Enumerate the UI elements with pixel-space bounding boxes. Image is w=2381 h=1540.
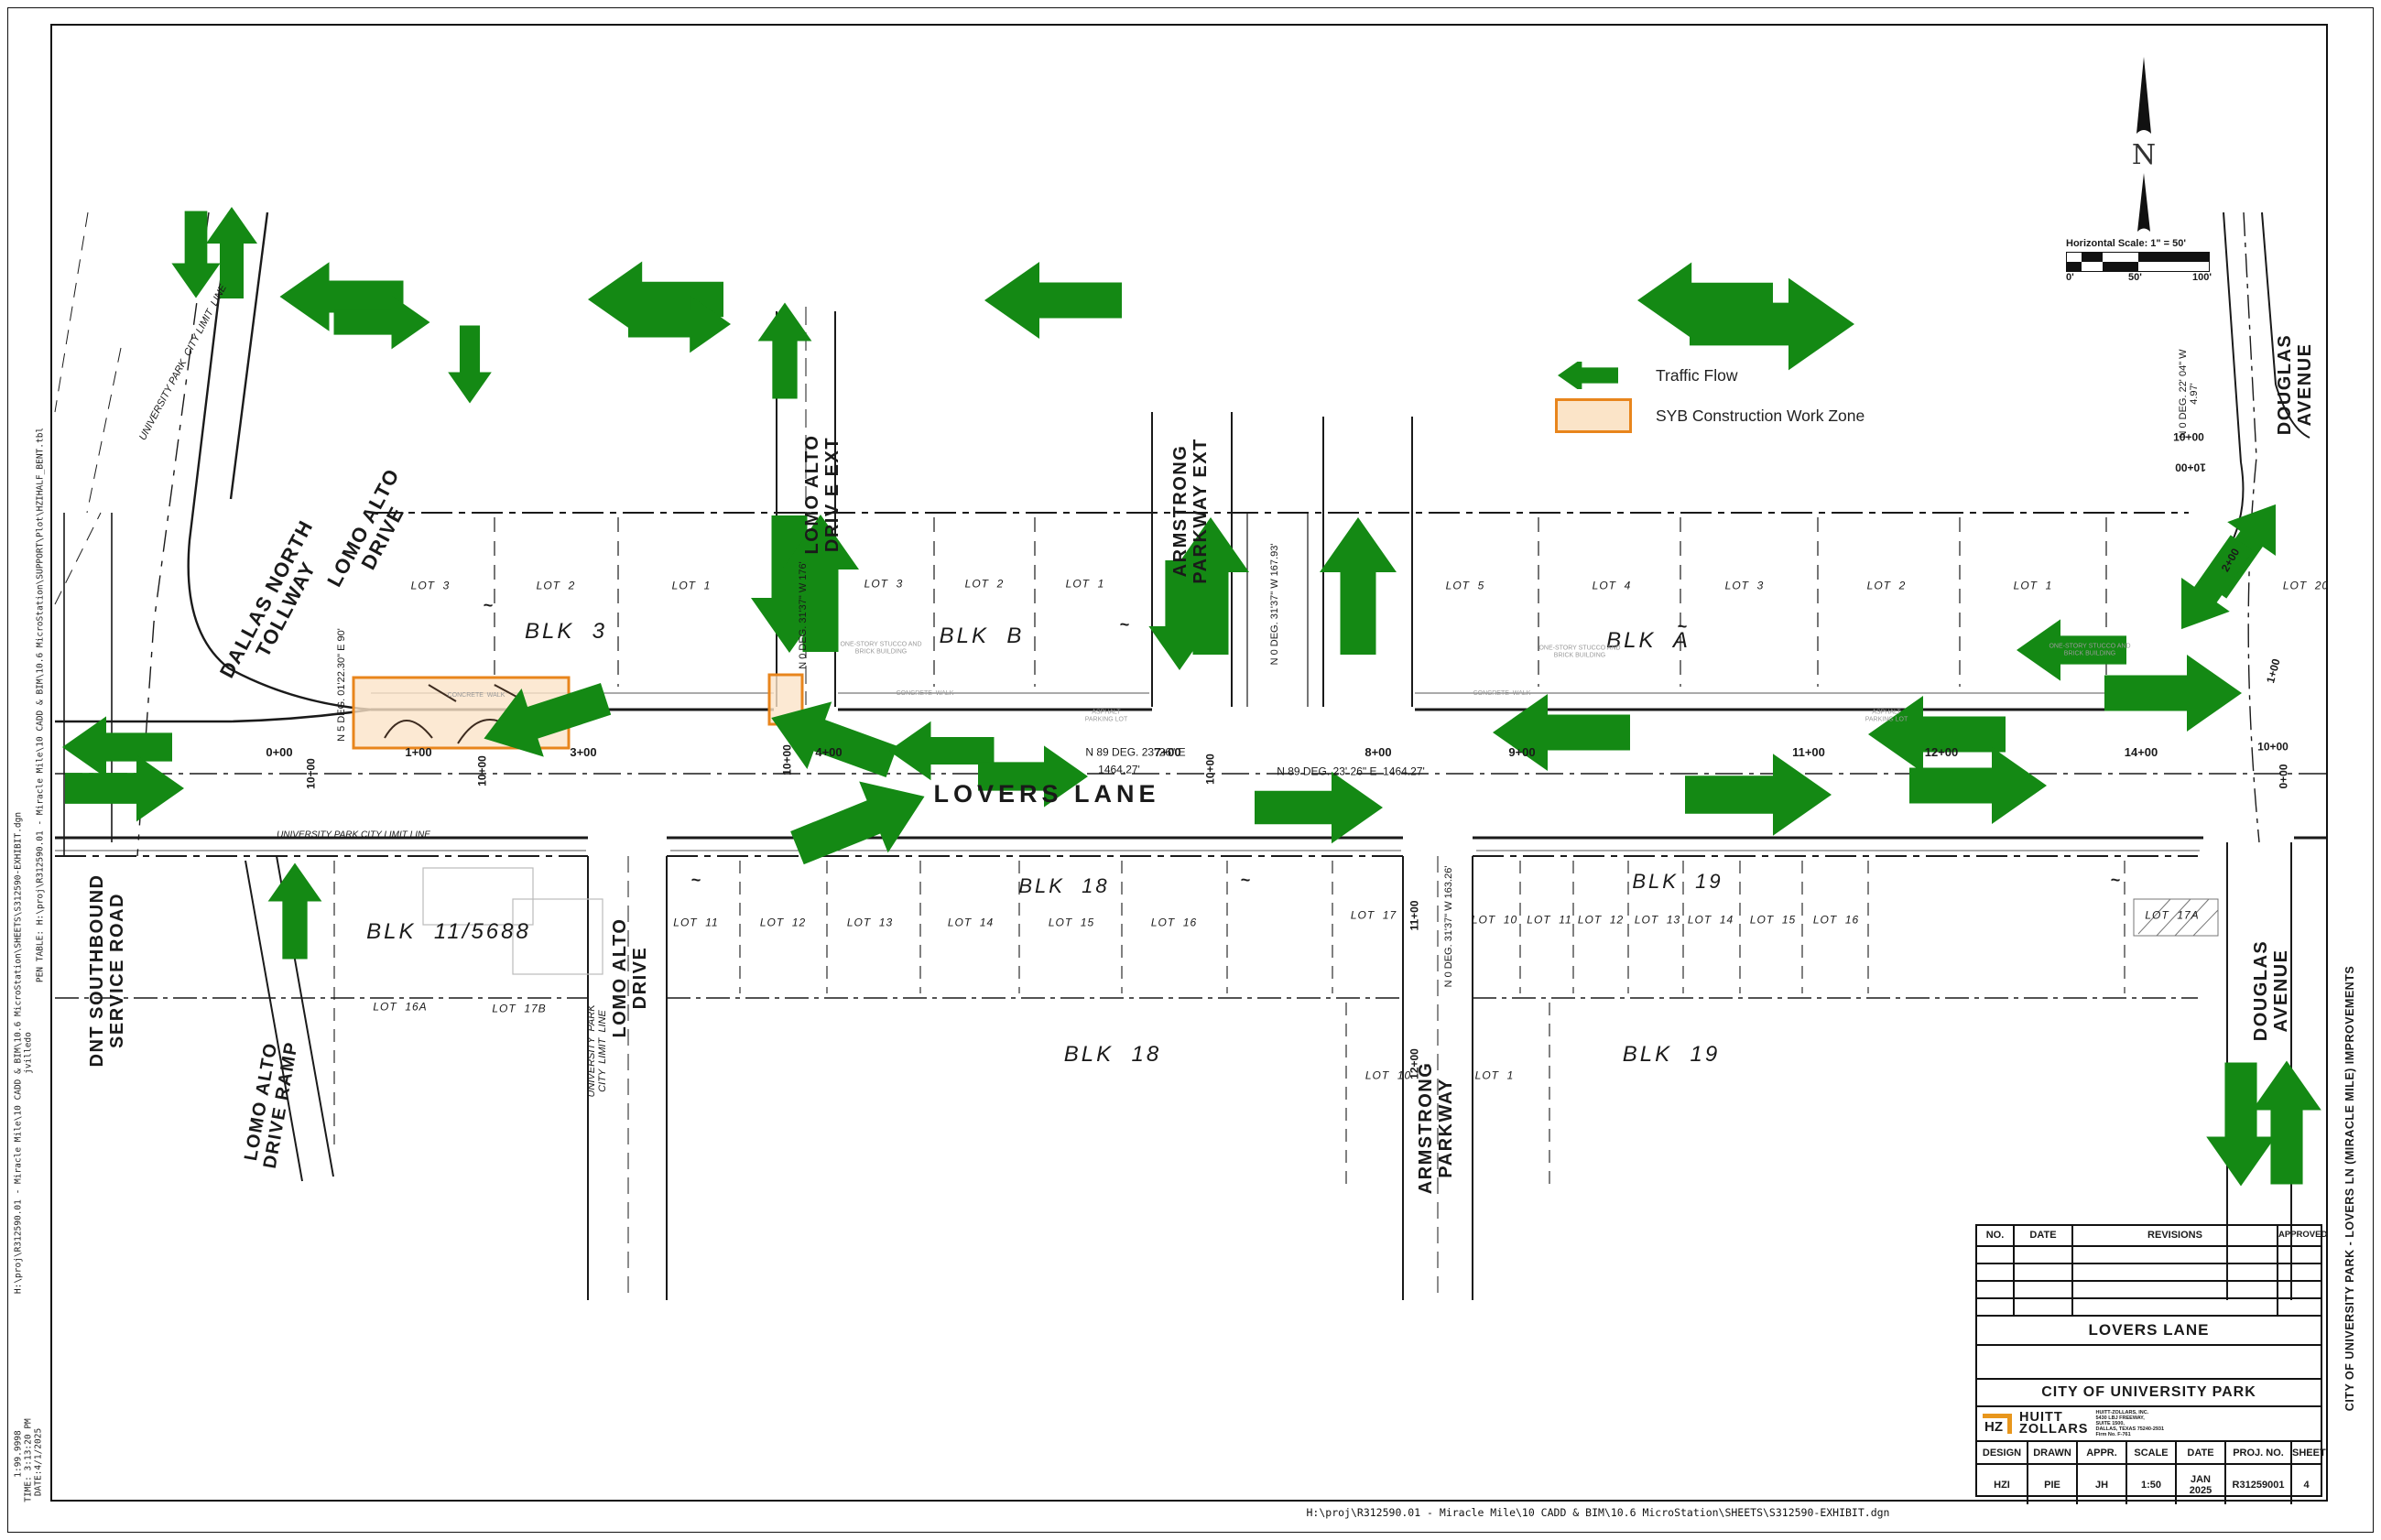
north-arrow-upper-spike [2121,55,2167,136]
lot-label: LOT 17B [492,1003,546,1014]
lot-label: LOT 16 [1813,914,1859,926]
lot-label: LOT 16 [1151,916,1197,928]
station-label: 10+00 [476,755,488,786]
right-margin-title: CITY OF UNIVERSITY PARK - LOVERS LN (MIR… [2343,966,2356,1411]
lot-label: LOT 2 [537,580,576,591]
north-arrow-lower-spike [2121,171,2167,233]
break-symbol: ~ [1241,872,1251,890]
revision-empty-cell [1977,1299,2015,1315]
revision-empty-cell [2073,1282,2278,1297]
title-block-value-design: HZI [1977,1465,2028,1504]
street-lovers-lane: LOVERS LANE [933,781,1159,808]
annotation-label: ONE-STORY STUCCO AND BRICK BUILDING [2049,643,2130,656]
revision-empty-cell [2015,1264,2073,1280]
title-block-column-values: HZIPIEJH1:50JAN 2025R312590014 [1977,1465,2321,1504]
station-label: 4+00 [815,746,842,759]
break-symbol: ~ [484,597,494,615]
lot-label: LOT 3 [1725,580,1765,591]
revision-empty-cell [2278,1282,2321,1297]
title-block-spacer [1977,1346,2321,1380]
title-block-header-drawn: DRAWN [2028,1442,2078,1463]
lot-label: LOT 17 [1351,909,1397,921]
block-blk-19-upper: BLK 19 [1632,871,1723,893]
horizontal-scale-bar: Horizontal Scale: 1" = 50' 0' 50' 100' [2066,238,2212,285]
station-label: 14+00 [2125,746,2158,759]
street-dnt-southbound-service-road: DNT SOUTHBOUND SERVICE ROAD [87,874,127,1068]
revision-empty-row [1977,1247,2321,1264]
block-blk-19-lower: BLK 19 [1623,1043,1720,1067]
lot-label: LOT 4 [1593,580,1632,591]
revision-empty-cell [2073,1247,2278,1263]
lot-label: LOT 14 [1688,914,1734,926]
scale-tick-50: 50' [2128,272,2142,283]
revision-empty-row [1977,1299,2321,1317]
street-armstrong-parkway-ext: ARMSTRONG PARKWAY EXT [1170,438,1211,584]
revision-empty-cell [2278,1264,2321,1280]
station-label: 1+00 [405,746,431,759]
lot-label: LOT 1 [2014,580,2053,591]
bearing-label: N 0 DEG. 31'37" W 176' [798,561,809,669]
annotation-label: CONCRETE WALK [1473,690,1531,698]
title-block-header-appr-: APPR. [2078,1442,2127,1463]
block-blk-11-5688: BLK 11/5688 [366,920,531,944]
north-arrow: N [2121,55,2167,238]
revisions-col-revisions: REVISIONS [2073,1226,2278,1245]
legend-traffic-flow-label: Traffic Flow [1656,366,1737,385]
revision-empty-row [1977,1264,2321,1282]
title-block-header-proj-no-: PROJ. NO. [2226,1442,2292,1463]
title-block-column-headers: DESIGNDRAWNAPPR.SCALEDATEPROJ. NO.SHEET [1977,1442,2321,1465]
station-label: 1+00 [2265,657,2283,685]
lot-label: LOT 2 [1867,580,1907,591]
scale-tick-0: 0' [2066,272,2074,283]
lot-label: LOT 14 [948,916,994,928]
legend-workzone-label: SYB Construction Work Zone [1656,407,1865,426]
client-title: CITY OF UNIVERSITY PARK [1977,1380,2321,1407]
scale-title: Horizontal Scale: 1" = 50' [2066,238,2212,249]
title-block-value-drawn: PIE [2028,1465,2078,1504]
north-letter: N [2121,140,2167,171]
scale-tick-100: 100' [2192,272,2212,283]
scale-bar-graphic [2066,252,2210,272]
revisions-empty-rows [1977,1247,2321,1317]
lot-label: LOT 1 [672,580,712,591]
lot-label: LOT 15 [1049,916,1094,928]
annotation-label: ASPHALT PARKING LOT [1865,709,1908,722]
city-limit-label: UNIVERSITY PARK CITY LIMIT LINE [277,830,430,840]
station-label: 10+00 [305,758,317,789]
lot-label: LOT 11 [1527,914,1571,926]
city-limit-label: UNIVERSITY PARK CITY LIMIT LINE [586,1004,608,1097]
left-margin-text: H:\proj\R312590.01 - Miracle Mile\10 CAD… [14,812,24,1294]
lot-label: LOT 12 [760,916,806,928]
revisions-col-date: DATE [2015,1226,2073,1245]
title-block-value-appr-: JH [2078,1465,2127,1504]
station-label: 3+00 [570,746,596,759]
left-margin-text: 1:99.9998 [14,1430,24,1477]
street-lomo-alto-drive-s: LOMO ALTO DRIVE [610,918,650,1038]
workzone-swatch-icon [1555,398,1632,433]
revision-empty-cell [2015,1282,2073,1297]
project-title: LOVERS LANE [1977,1317,2321,1346]
street-armstrong-parkway-s: ARMSTRONG PARKWAY [1416,1062,1456,1195]
lot-label: LOT 15 [1750,914,1796,926]
scale-tick-labels: 0' 50' 100' [2066,272,2211,285]
break-symbol: ~ [691,872,701,890]
annotation-label: ONE-STORY STUCCO AND BRICK BUILDING [1538,645,1620,658]
lot-label: LOT 12 [1578,914,1624,926]
left-margin-text: TIME: 3:13:20 PM [24,1418,34,1502]
annotation-label: CONCRETE WALK [448,692,506,700]
lot-label: LOT 17A [2145,909,2199,921]
street-douglas-avenue-s: DOUGLAS AVENUE [2251,940,2291,1042]
revision-empty-cell [1977,1282,2015,1297]
annotation-label: CONCRETE WALK [897,690,954,698]
break-symbol: ~ [1678,618,1688,636]
title-block-value-date: JAN 2025 [2177,1465,2226,1504]
block-blk-3: BLK 3 [525,620,607,644]
title-block-header-scale: SCALE [2127,1442,2177,1463]
station-label: 12+00 [1408,1048,1420,1079]
lot-label: LOT 3 [864,578,904,590]
title-block-header-design: DESIGN [1977,1442,2028,1463]
bearing-label: N 89 DEG. 23' 26" E 1464.27' [1277,765,1425,777]
station-label: 12+00 [1925,746,1959,759]
left-margin-text: PEN TABLE: H:\proj\R312590.01 - Miracle … [36,428,46,982]
bearing-label: N 89 DEG. 23' 26" E [1085,746,1185,758]
annotation-label: ONE-STORY STUCCO AND BRICK BUILDING [840,641,921,655]
street-dallas-north-tollway: DALLAS NORTH TOLLWAY [216,516,338,692]
station-label: 10+00 [2175,461,2206,472]
traffic-flow-arrow-icon [1555,362,1632,389]
legend-workzone-row: SYB Construction Work Zone [1555,396,1865,436]
revisions-col-approved: APPROVED [2278,1226,2321,1245]
title-block-value-sheet: 4 [2292,1465,2321,1504]
station-label: 8+00 [1364,746,1391,759]
revision-empty-row [1977,1282,2321,1299]
lot-label: LOT 20 [2283,580,2329,591]
legend: Traffic Flow SYB Construction Work Zone [1555,355,1865,436]
hz-logo-icon: HZ [1983,1414,2012,1434]
station-label: 11+00 [1408,900,1420,930]
title-block-header-sheet: SHEET [2292,1442,2326,1463]
revision-empty-cell [2073,1299,2278,1315]
station-label: 10+00 [781,744,793,775]
station-label: 2+00 [2220,547,2243,574]
title-block-value-proj-no-: R31259001 [2226,1465,2292,1504]
block-blk-b: BLK B [940,624,1025,648]
bearing-label: N 0 DEG. 31'37" W 163.26' [1443,866,1454,988]
annotation-label: ASPHALT PARKING LOT [1085,709,1128,722]
station-label: 0+00 [2278,764,2289,788]
block-blk-18-upper: BLK 18 [1018,875,1109,897]
bearing-label: N 5 DEG. 01'22.30" E 90' [336,628,347,742]
lot-label: LOT 13 [847,916,893,928]
bearing-label: N 0 DEG. 31'37" W 167.93' [1269,544,1280,666]
traffic-flow-arrow-glyph [1558,362,1618,389]
legend-traffic-flow-row: Traffic Flow [1555,355,1865,396]
left-margin-text: DATE:4/1/2025 [34,1428,44,1496]
bottom-file-path: H:\proj\R312590.01 - Miracle Mile\10 CAD… [1307,1506,1890,1519]
revisions-col-no: NO. [1977,1226,2015,1245]
lot-label: LOT 2 [965,578,1005,590]
firm-name: HUITT ZOLLARS [2019,1412,2088,1436]
lot-label: LOT 13 [1635,914,1680,926]
block-blk-18-lower: BLK 18 [1064,1043,1161,1067]
break-symbol: ~ [1120,616,1130,634]
revision-empty-cell [2015,1299,2073,1315]
revision-empty-cell [1977,1264,2015,1280]
lot-label: LOT 3 [411,580,451,591]
revision-empty-cell [2073,1264,2278,1280]
left-margin-text: jvilledo [24,1032,34,1074]
exhibit-sheet: DALLAS NORTH TOLLWAYLOMO ALTO DRIVELOMO … [0,0,2381,1540]
revision-empty-cell [2278,1247,2321,1263]
street-douglas-avenue-n: DOUGLAS AVENUE [2275,334,2315,436]
lot-label: LOT 1 [1066,578,1105,590]
revision-empty-cell [1977,1247,2015,1263]
title-block: NO. DATE REVISIONS APPROVED LOVERS LANE … [1975,1224,2322,1497]
station-label: 10+00 [2257,741,2289,753]
bearing-label: 1464.27' [1098,764,1140,775]
station-label: 10+00 [1204,754,1216,785]
street-lomo-alto-drive-ramp: LOMO ALTO DRIVE RAMP [240,1036,302,1170]
lot-label: LOT 11 [673,916,718,928]
lot-label: LOT 5 [1446,580,1485,591]
city-limit-label: UNIVERSITY PARK CITY LIMIT LINE [137,283,229,442]
title-block-value-scale: 1:50 [2127,1465,2177,1504]
break-symbol: ~ [2111,872,2121,890]
revision-empty-cell [2278,1299,2321,1315]
revision-empty-cell [2015,1247,2073,1263]
revisions-header-row: NO. DATE REVISIONS APPROVED [1977,1226,2321,1247]
bearing-label: N 0 DEG. 22' 04" W 4.97' [2178,349,2200,438]
title-block-header-date: DATE [2177,1442,2226,1463]
street-lomo-alto-drive-ext: LOMO ALTO DRIV E EXT [802,435,843,555]
firm-address: HUITT-ZOLLARS, INC. 5430 LBJ FREEWAY, SU… [2095,1410,2164,1437]
station-label: 0+00 [266,746,292,759]
firm-logo-block: HZ HUITT ZOLLARS HUITT-ZOLLARS, INC. 543… [1977,1407,2321,1442]
lot-label: LOT 10 [1365,1069,1411,1081]
lot-label: LOT 10 [1472,914,1517,926]
station-label: 9+00 [1508,746,1535,759]
lot-label: LOT 16A [373,1001,427,1013]
station-label: 11+00 [1792,746,1825,759]
street-lomo-alto-drive-nw: LOMO ALTO DRIVE [323,465,424,602]
lot-label: LOT 1 [1475,1069,1515,1081]
